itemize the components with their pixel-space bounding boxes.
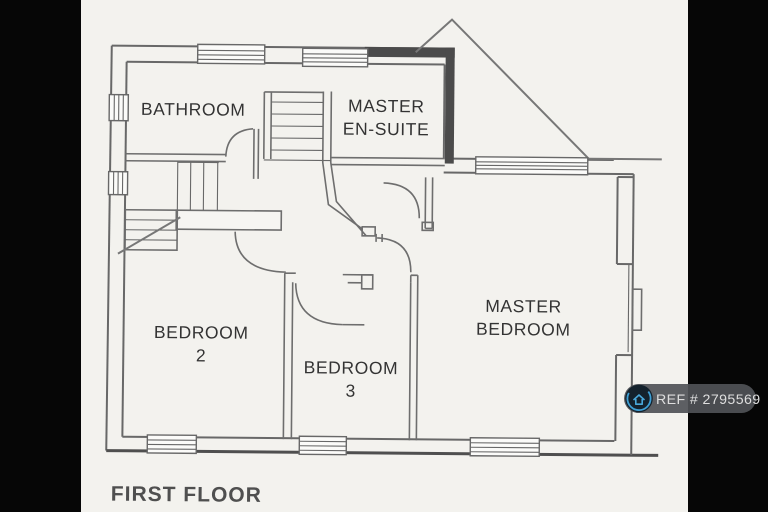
label-bedroom3-line2: 3 [346, 381, 357, 401]
floorplan-canvas: BATHROOM MASTER EN-SUITE BEDROOM 2 BEDRO… [0, 0, 768, 512]
paper-background [0, 0, 768, 512]
label-master-ensuite-line1: MASTER [348, 96, 425, 117]
floor-title: FIRST FLOOR [111, 483, 262, 507]
label-master-bedroom-line1: MASTER [485, 296, 562, 317]
ensuite-top-thick-wall [365, 47, 455, 58]
window-left-2 [108, 172, 127, 195]
window-bottom-1 [147, 435, 196, 453]
label-bedroom3-line1: BEDROOM [304, 357, 399, 378]
label-master-bedroom-line2: BEDROOM [476, 319, 571, 340]
ref-badge-text: REF # 2795569 [656, 392, 761, 408]
right-letterbox-bar [688, 0, 768, 512]
landing-half-wall [176, 210, 281, 230]
house-logo-icon [625, 385, 653, 413]
ref-watermark-badge: REF # 2795569 [624, 384, 761, 413]
label-master-ensuite-line2: EN-SUITE [343, 119, 430, 140]
ensuite-right-thick-wall [445, 48, 455, 164]
window-bottom-2 [299, 436, 346, 454]
window-top-2 [303, 48, 368, 67]
floorplan-screenshot: BATHROOM MASTER EN-SUITE BEDROOM 2 BEDRO… [0, 0, 768, 512]
left-letterbox-bar [0, 0, 81, 512]
window-top-1 [198, 44, 265, 64]
label-bathroom: BATHROOM [141, 99, 246, 120]
window-master-top [476, 157, 588, 175]
window-left-1 [109, 95, 128, 121]
label-bedroom2-line2: 2 [196, 345, 207, 365]
window-bottom-3 [470, 438, 539, 457]
label-bedroom2-line1: BEDROOM [154, 322, 249, 343]
